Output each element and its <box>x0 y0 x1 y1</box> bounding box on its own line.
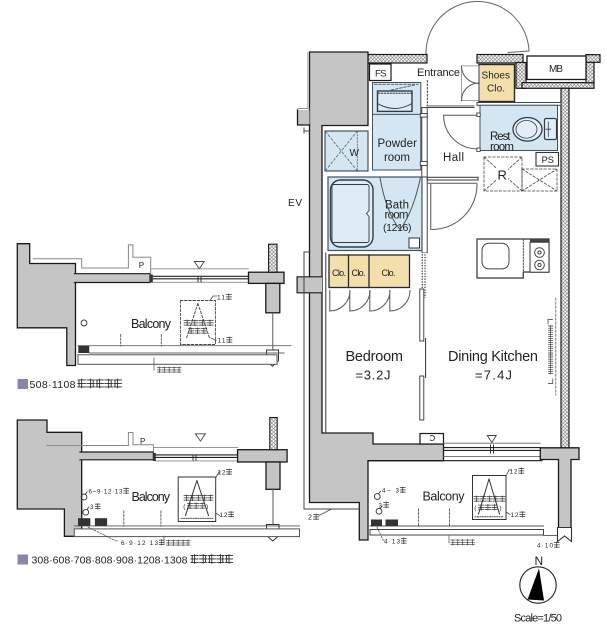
svg-text:(1216): (1216) <box>383 222 412 234</box>
svg-text:4·13: 4·13 <box>384 539 400 546</box>
svg-text:MB: MB <box>549 64 563 75</box>
svg-text:Scale=1/50: Scale=1/50 <box>514 613 562 625</box>
svg-text:Powder: Powder <box>378 138 418 150</box>
svg-text:Clo.: Clo. <box>487 84 505 95</box>
svg-text:=7.4J: =7.4J <box>475 368 512 383</box>
svg-text:room: room <box>490 142 514 154</box>
svg-text:12: 12 <box>220 512 228 519</box>
svg-text:Balcony: Balcony <box>131 317 172 331</box>
svg-text:=3.2J: =3.2J <box>356 368 391 383</box>
svg-text:PS: PS <box>542 155 555 166</box>
svg-text:12: 12 <box>511 512 519 519</box>
svg-text:Shoes: Shoes <box>482 71 511 82</box>
svg-text:Clo.: Clo. <box>332 268 346 278</box>
svg-text:Bedroom: Bedroom <box>346 349 404 365</box>
svg-text:FS: FS <box>375 69 387 80</box>
svg-text:11: 11 <box>217 295 225 302</box>
svg-text:room: room <box>385 210 409 222</box>
svg-text:Clo.: Clo. <box>382 268 396 278</box>
svg-text:Balcony: Balcony <box>423 490 466 504</box>
svg-text:6·9·12 13: 6·9·12 13 <box>121 540 158 547</box>
svg-text:4·10: 4·10 <box>537 543 553 550</box>
svg-text:308·608·708·808·908·1208·1308: 308·608·708·808·908·1208·1308 <box>32 555 188 567</box>
svg-text:12: 12 <box>510 469 518 476</box>
svg-text:room: room <box>384 152 410 164</box>
svg-text:Dining Kitchen: Dining Kitchen <box>448 349 538 365</box>
svg-text:EV: EV <box>288 198 302 209</box>
svg-text:P: P <box>140 437 145 446</box>
svg-text:P: P <box>139 261 144 270</box>
svg-text:11: 11 <box>218 338 226 345</box>
svg-text:W: W <box>350 148 360 159</box>
svg-text:Balcony: Balcony <box>132 490 171 504</box>
svg-text:Clo.: Clo. <box>352 268 366 278</box>
svg-text:6~9·12·13: 6~9·12·13 <box>89 489 124 496</box>
svg-text:Hall: Hall <box>443 152 464 164</box>
svg-text:): ) <box>500 505 502 512</box>
svg-text:4~ 3: 4~ 3 <box>382 488 400 495</box>
svg-text:Entrance: Entrance <box>417 67 460 79</box>
svg-text:3: 3 <box>379 503 383 510</box>
svg-text:N: N <box>535 554 544 568</box>
svg-text:): ) <box>206 504 208 511</box>
svg-text:3: 3 <box>90 504 94 511</box>
svg-text:12: 12 <box>218 470 226 477</box>
svg-text:508·1108: 508·1108 <box>30 379 76 391</box>
svg-text:2: 2 <box>308 515 312 522</box>
svg-text:R: R <box>498 168 507 183</box>
